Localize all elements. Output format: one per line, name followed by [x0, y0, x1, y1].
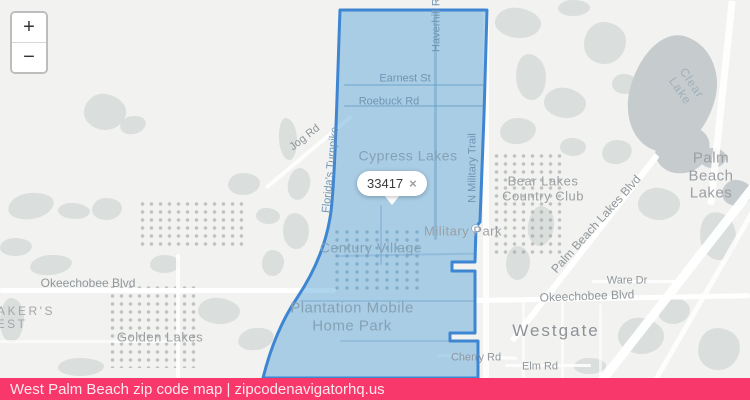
- zoom-control: + −: [10, 11, 48, 74]
- popup-zip-code: 33417: [367, 176, 403, 191]
- zip-popup: 33417 ×: [357, 171, 427, 196]
- popup-tail: [384, 195, 400, 205]
- attribution-bar: West Palm Beach zip code map | zipcodena…: [0, 378, 750, 400]
- zoom-out-button[interactable]: −: [12, 43, 46, 72]
- popup-close-icon[interactable]: ×: [409, 176, 417, 191]
- map-canvas[interactable]: Earnest StRoebuck RdCypress LakesCentury…: [0, 0, 750, 400]
- boundary-vertex-marker[interactable]: [471, 224, 480, 233]
- attribution-text: West Palm Beach zip code map | zipcodena…: [10, 381, 385, 398]
- zoom-in-button[interactable]: +: [12, 13, 46, 43]
- zip-boundary-overlay: [0, 0, 750, 400]
